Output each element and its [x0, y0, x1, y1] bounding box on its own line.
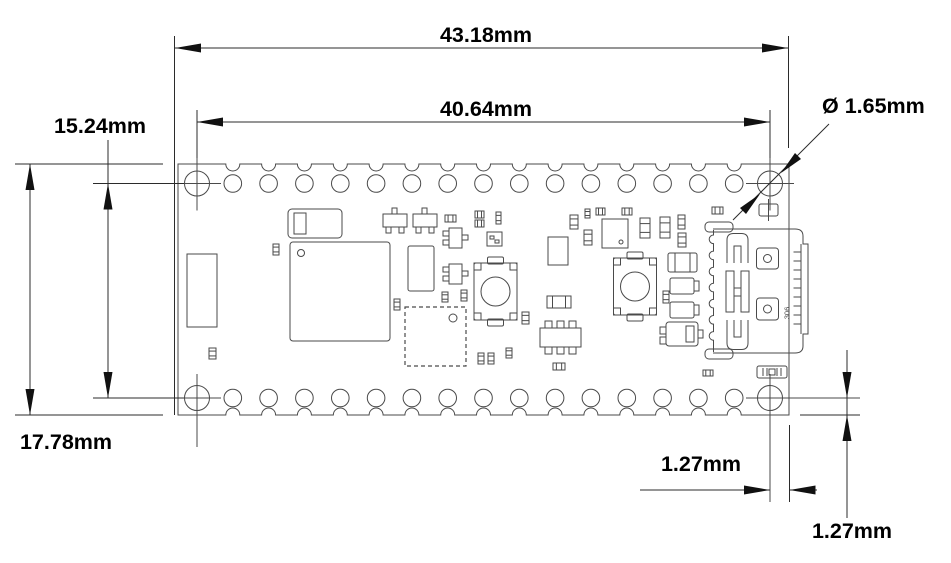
dim-hole-offset-vertical: 1.27mm [800, 350, 892, 543]
pcb-dimension-drawing: 306 43.18mm [0, 0, 951, 563]
passive-component [475, 220, 484, 227]
pin-hole [439, 175, 457, 193]
pin-hole [654, 175, 672, 193]
left-edge-pad [187, 254, 217, 327]
passive-component [584, 230, 592, 245]
passive-component [585, 209, 590, 218]
dim-overall-height: 17.78mm [15, 164, 163, 454]
hole-offset-vertical-label: 1.27mm [812, 519, 892, 543]
small-ic-marked [487, 232, 502, 246]
sot23-vertical [443, 228, 468, 248]
passive-component [442, 292, 448, 302]
crystal-2 [660, 322, 703, 346]
mounting-hole-bottom-left [173, 374, 221, 447]
pin-row-span-label: 40.64mm [440, 97, 532, 121]
passive-component [522, 312, 529, 324]
pin-hole [725, 389, 743, 407]
usb-lip-ridges [794, 252, 802, 324]
arrowhead-left [790, 486, 816, 495]
pcb-outline-castellated [178, 164, 789, 415]
overall-width-label: 43.18mm [440, 23, 532, 47]
passive-component [678, 233, 686, 247]
rf-module [405, 307, 466, 366]
usb-marking-text: 306 [783, 307, 792, 320]
passive-component [506, 348, 512, 358]
arrowhead-right [762, 44, 788, 53]
regulator-ic [540, 321, 581, 354]
passive-component [478, 353, 484, 364]
pin-hole [260, 175, 278, 193]
dimension-annotations: 43.18mm 40.64mm 17.78mm 15.24mm [15, 23, 925, 543]
pin-hole [654, 389, 672, 407]
mounting-hole-bottom-right [746, 374, 860, 502]
usb-contacts [726, 234, 749, 350]
mechanical-drawing-canvas: 306 43.18mm [0, 0, 951, 563]
sot23 [383, 208, 407, 233]
passive-component [660, 217, 670, 238]
tactile-buttons [474, 252, 657, 326]
pin1-dot [298, 250, 305, 257]
pin-hole [224, 389, 242, 407]
dim-hole-row-span: 15.24mm [54, 114, 184, 398]
arrowhead-down [843, 372, 852, 398]
arrowhead-up [26, 164, 35, 190]
arrowhead-right [744, 118, 770, 127]
passive-component [488, 353, 494, 364]
arrowhead-right [744, 486, 770, 495]
mid-square-part [548, 237, 568, 265]
passive-component [640, 218, 650, 238]
overall-height-label: 17.78mm [20, 430, 112, 454]
sot23-vertical [443, 264, 468, 284]
pin-hole [618, 175, 636, 193]
arrowhead-lower [740, 194, 760, 214]
passive-component [209, 348, 216, 359]
edge-capacitor-top [759, 199, 778, 221]
pcb-board [173, 156, 860, 503]
pin-hole [403, 175, 421, 193]
pin-hole [367, 175, 385, 193]
right-ic [602, 219, 628, 248]
arrowhead-left [175, 44, 201, 53]
pin-hole [725, 175, 743, 193]
micro-usb-connector: 306 [705, 199, 808, 378]
pin-hole [475, 389, 493, 407]
pin-hole [618, 389, 636, 407]
dim-hole-diameter: Ø 1.65mm [733, 94, 925, 220]
pin-hole [367, 389, 385, 407]
dim-hole-offset-horizontal: 1.27mm [640, 425, 817, 502]
pin-hole [296, 389, 314, 407]
pin-hole [511, 389, 529, 407]
arrowhead-upper [781, 153, 801, 173]
pin-hole [582, 389, 600, 407]
passive-component [496, 212, 501, 224]
crystal [288, 209, 342, 238]
pin-hole [546, 389, 564, 407]
passive-component [596, 208, 605, 215]
reset-button [614, 252, 657, 321]
pin-hole [546, 175, 564, 193]
usb-solder-tabs [757, 248, 779, 320]
passive-component [712, 207, 723, 214]
pin-hole [475, 175, 493, 193]
pin-hole [332, 389, 350, 407]
usb-shield-scallop-edge [709, 230, 713, 352]
arrowhead-down [26, 389, 35, 415]
pin-hole [260, 389, 278, 407]
inductor [408, 246, 434, 291]
pin-hole [296, 175, 314, 193]
passive-component [703, 370, 713, 376]
edge-component-bottom [757, 366, 787, 378]
passive-component [461, 290, 467, 301]
sot23 [413, 208, 437, 233]
user-button [474, 257, 517, 326]
board-components [187, 207, 723, 376]
arrowhead-up [104, 184, 113, 210]
pin-hole [690, 389, 708, 407]
passive-component [394, 299, 400, 310]
dim-pin-row-span: 40.64mm [197, 97, 770, 158]
arrowhead-down [104, 372, 113, 398]
passive-component [678, 215, 685, 229]
passive-component [663, 291, 669, 303]
pin-hole [439, 389, 457, 407]
arrowhead-up [843, 415, 852, 441]
hole-row-span-label: 15.24mm [54, 114, 146, 138]
usb-tab-top [705, 222, 733, 232]
capacitor-cluster [668, 253, 699, 318]
pin-hole [403, 389, 421, 407]
arrowhead-left [197, 118, 223, 127]
mounting-holes [173, 156, 860, 503]
pin-hole [332, 175, 350, 193]
pin-hole [224, 175, 242, 193]
passive-component [273, 244, 279, 255]
hole-offset-horizontal-label: 1.27mm [661, 452, 741, 476]
passive-component [622, 208, 632, 215]
chip-resistor [547, 296, 571, 308]
pin-hole [582, 175, 600, 193]
hole-diameter-label: Ø 1.65mm [822, 94, 925, 118]
pin-hole [690, 175, 708, 193]
passive-component [553, 363, 565, 370]
passives [209, 207, 723, 376]
passive-component [475, 211, 484, 218]
usb-tab-bottom [705, 349, 733, 359]
main-ic [290, 242, 390, 341]
pin-hole [511, 175, 529, 193]
passive-component [445, 215, 456, 222]
passive-component [570, 215, 578, 229]
